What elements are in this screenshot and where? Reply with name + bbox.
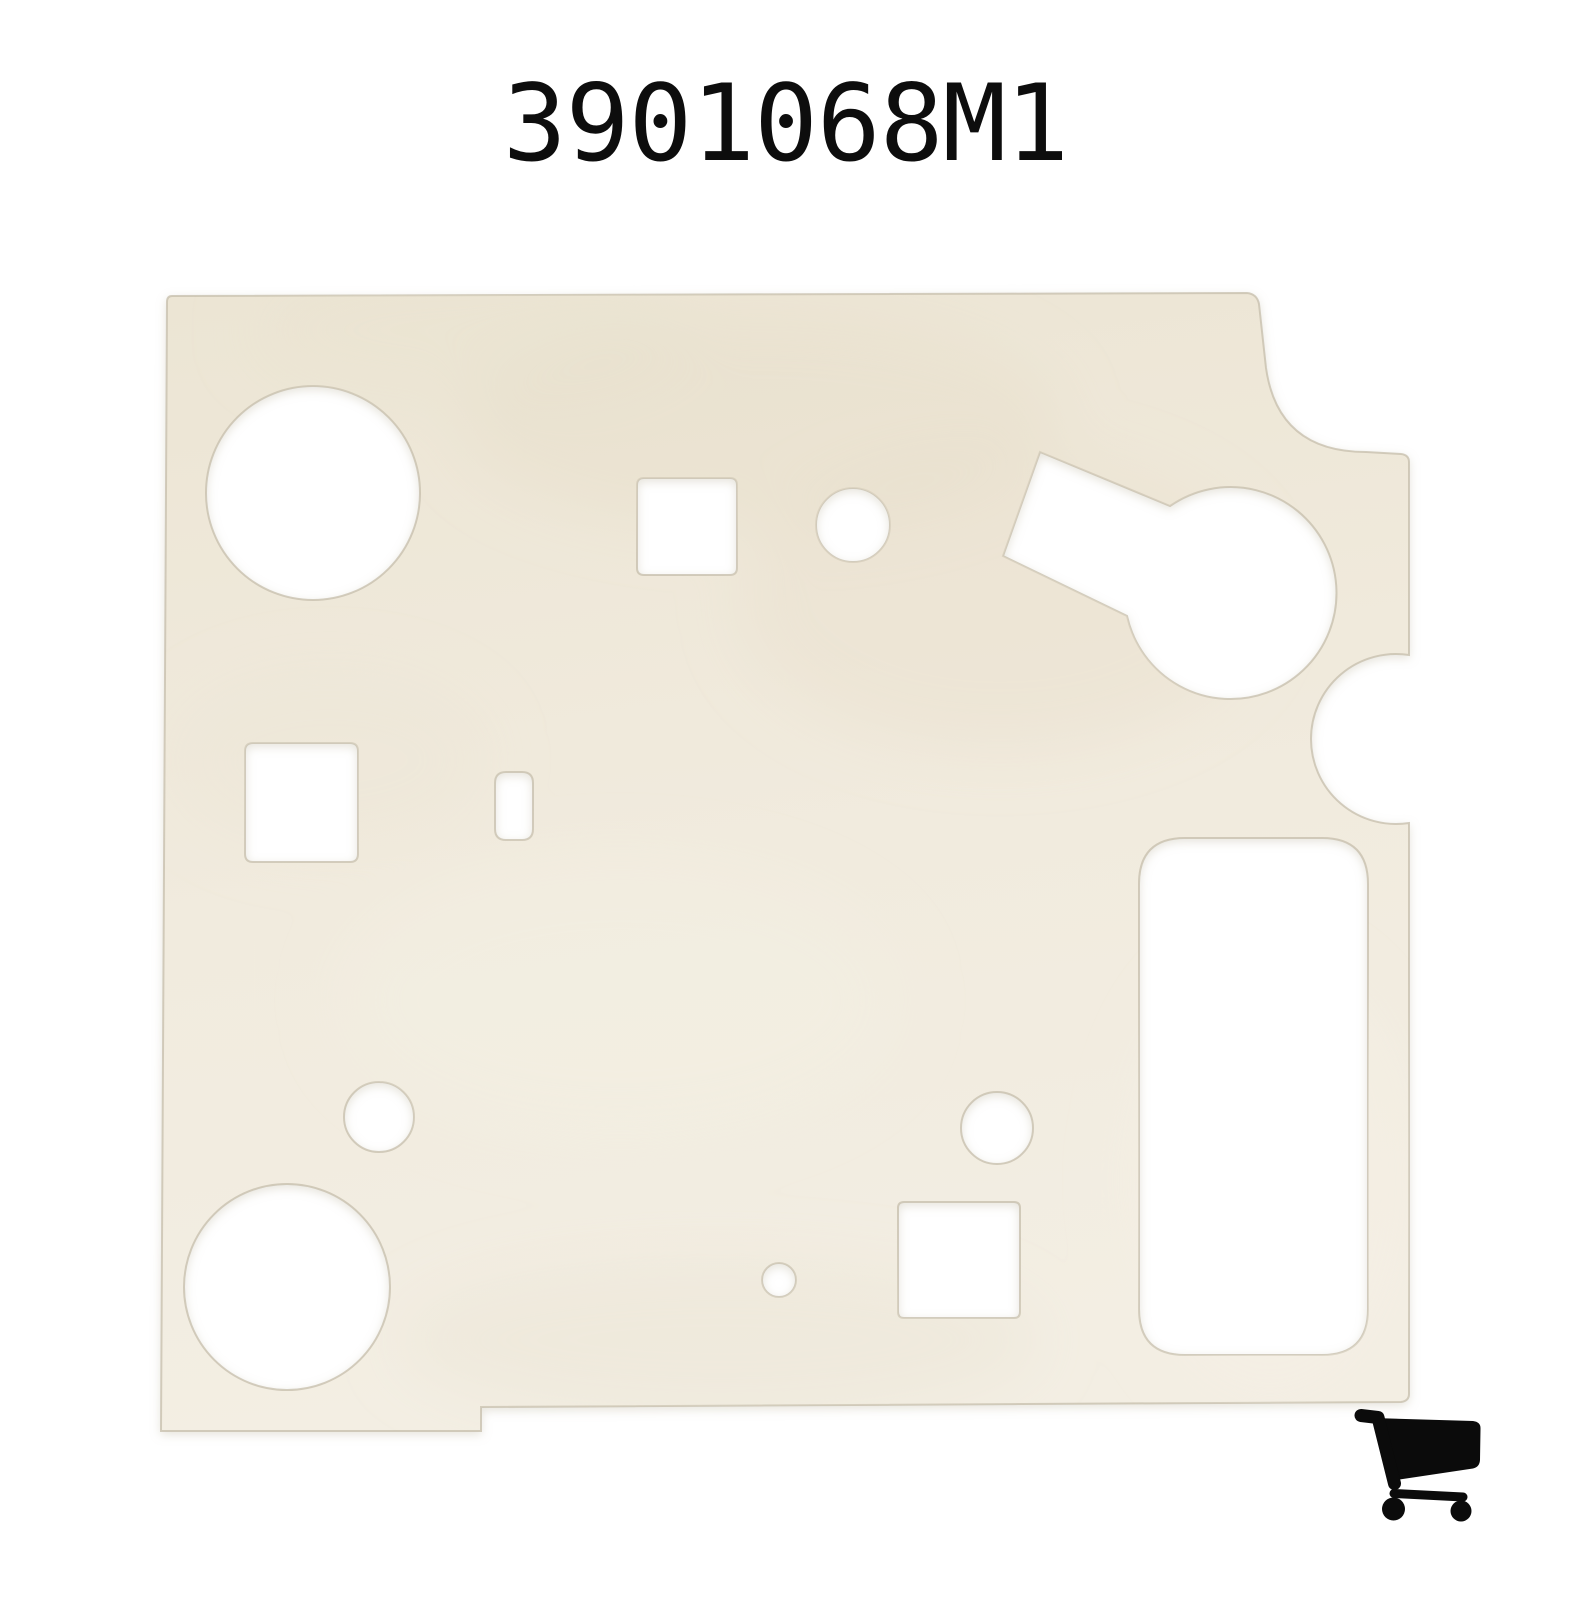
product-page: 3901068M1 bbox=[0, 0, 1571, 1600]
product-photo bbox=[0, 0, 1571, 1600]
shopping-cart-icon bbox=[1353, 1406, 1485, 1522]
add-to-cart-button[interactable] bbox=[1353, 1406, 1485, 1522]
